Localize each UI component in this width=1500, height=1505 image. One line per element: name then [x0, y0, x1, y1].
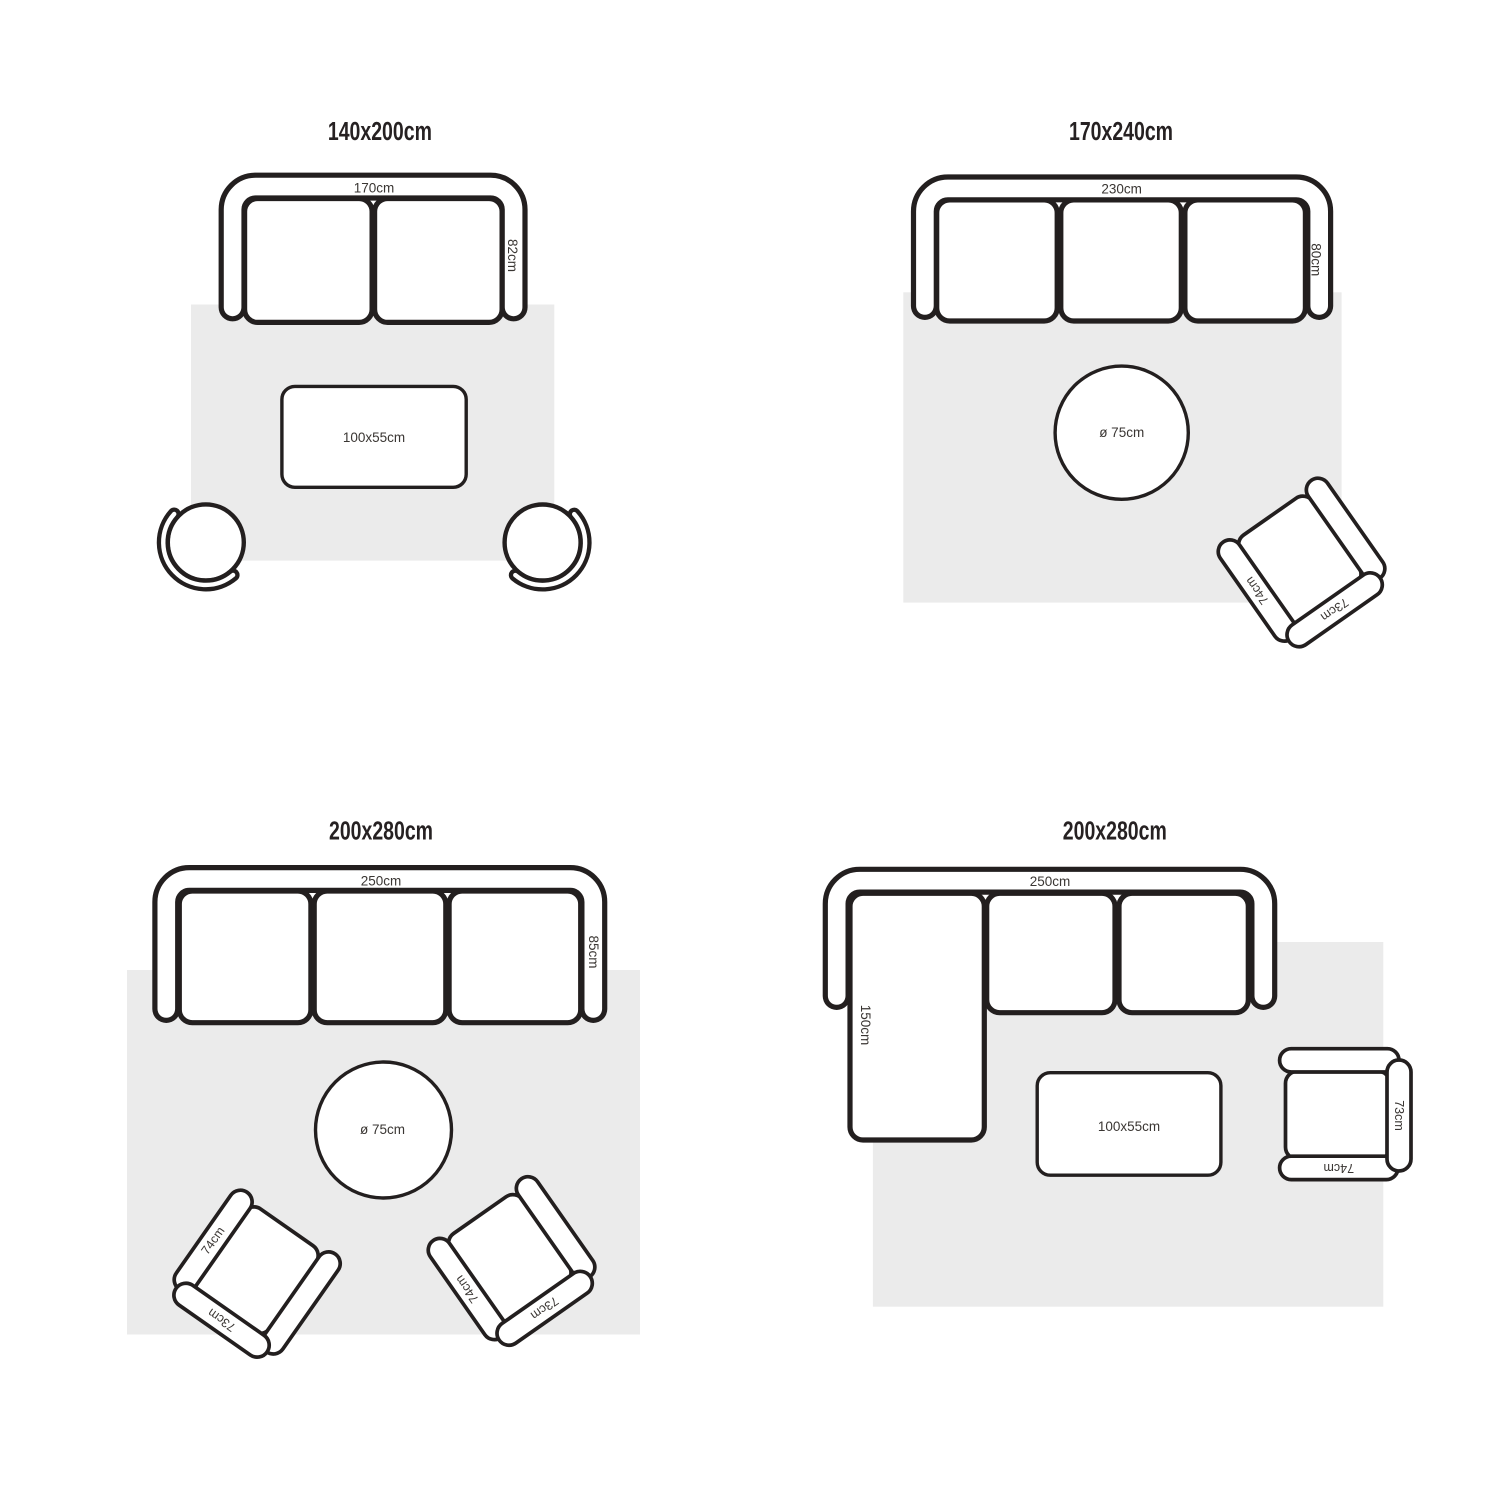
svg-text:ø 75cm: ø 75cm: [360, 1122, 405, 1137]
svg-text:140x200cm: 140x200cm: [328, 118, 432, 146]
svg-text:200x280cm: 200x280cm: [1063, 818, 1167, 846]
svg-text:170cm: 170cm: [354, 181, 395, 196]
svg-text:250cm: 250cm: [1030, 874, 1071, 889]
svg-text:100x55cm: 100x55cm: [1098, 1119, 1160, 1134]
svg-text:250cm: 250cm: [361, 874, 402, 889]
svg-text:230cm: 230cm: [1101, 182, 1142, 197]
svg-text:150cm: 150cm: [858, 1005, 873, 1046]
svg-text:82cm: 82cm: [505, 239, 520, 272]
svg-text:80cm: 80cm: [1309, 243, 1324, 276]
svg-text:200x280cm: 200x280cm: [329, 818, 433, 846]
svg-text:ø 75cm: ø 75cm: [1099, 425, 1144, 440]
svg-text:170x240cm: 170x240cm: [1069, 118, 1173, 146]
svg-text:100x55cm: 100x55cm: [343, 430, 405, 445]
svg-text:85cm: 85cm: [586, 935, 601, 968]
